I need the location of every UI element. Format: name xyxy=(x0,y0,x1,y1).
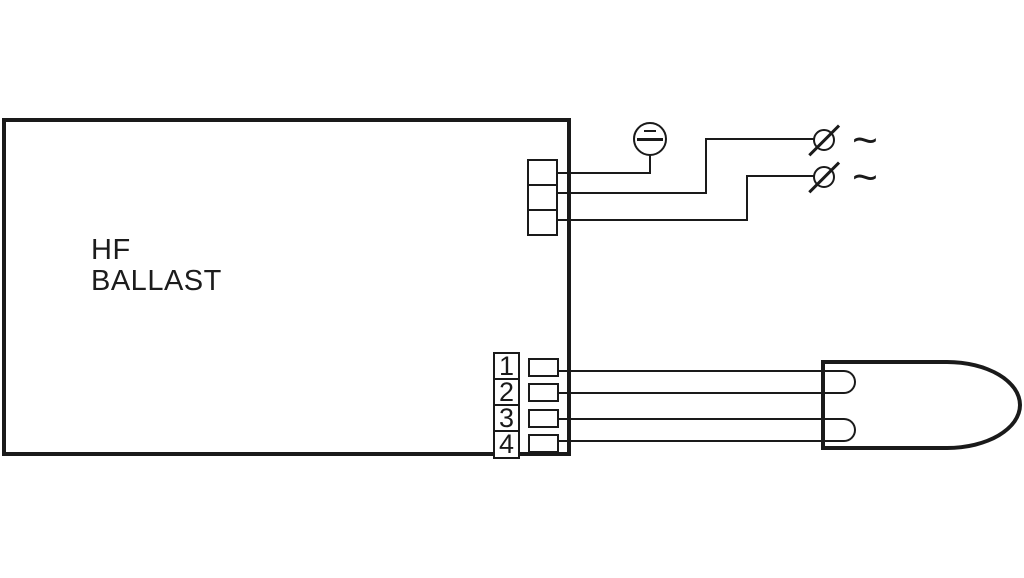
lamp-wire-3 xyxy=(559,418,842,420)
lamp-pin-box-4 xyxy=(528,434,559,453)
filament-2-arc xyxy=(832,418,856,442)
lamp-pin-box-1 xyxy=(528,358,559,377)
mains-terminal-3 xyxy=(527,209,558,236)
wiring-diagram: HF BALLAST ~ ~ 1 2 3 4 xyxy=(0,0,1024,578)
neutral-wire-v xyxy=(746,176,748,221)
live-wire-h1 xyxy=(558,192,707,194)
lamp-pin-box-2 xyxy=(528,383,559,402)
earth-symbol-long-bar xyxy=(637,138,663,141)
live-wire-v xyxy=(705,139,707,194)
neutral-wire-h2 xyxy=(746,175,814,177)
lamp-wire-1 xyxy=(559,370,842,372)
earth-wire xyxy=(558,172,651,174)
ballast-label-line2: BALLAST xyxy=(91,266,222,297)
lamp-pin-box-3 xyxy=(528,409,559,428)
live-wire-h2 xyxy=(705,138,814,140)
lamp-wire-2 xyxy=(559,392,842,394)
neutral-wire-h1 xyxy=(558,219,748,221)
mains-terminal-2 xyxy=(527,184,558,211)
mains-terminal-1 xyxy=(527,159,558,186)
lamp-terminal-number-4: 4 xyxy=(499,429,514,459)
ac-symbol-2: ~ xyxy=(847,156,883,200)
ballast-label-line1: HF xyxy=(91,235,222,266)
earth-symbol-short-bar xyxy=(644,130,656,132)
filament-1-arc xyxy=(832,370,856,394)
ballast-label: HF BALLAST xyxy=(91,235,222,297)
lamp-wire-4 xyxy=(559,440,842,442)
lamp-terminal-cell-4: 4 xyxy=(493,430,520,459)
ballast-box xyxy=(2,118,571,456)
